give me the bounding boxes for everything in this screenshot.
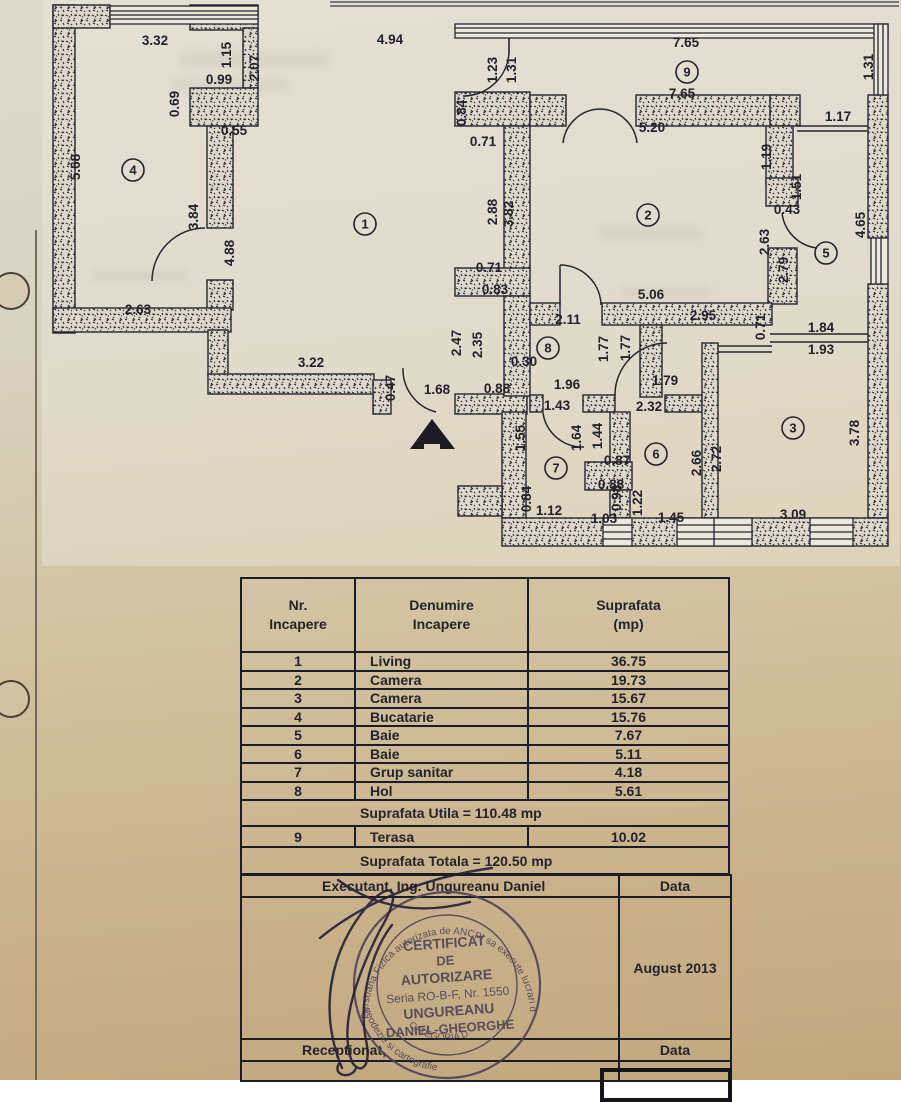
- dim-label: 1.19: [759, 144, 774, 170]
- room-circle: [676, 61, 698, 83]
- room-number: 5: [822, 246, 829, 261]
- room-number: 4: [129, 163, 137, 178]
- entrance-arrow: [410, 419, 455, 449]
- dim-label: 2.47: [449, 330, 464, 356]
- table-cell: 5.61: [528, 782, 729, 801]
- table-cell: Living: [355, 652, 528, 671]
- dim-label: 0.83: [482, 282, 509, 297]
- floor-plan: 3.324.941.231.317.651.317.651.152.070.99…: [0, 0, 901, 570]
- dim-label: 2.32: [636, 399, 662, 414]
- bleed-smudge: [598, 226, 703, 239]
- table-cell: Baie: [355, 726, 528, 745]
- table-cell: 7.67: [528, 726, 729, 745]
- table-cell: Baie: [355, 745, 528, 764]
- room-circle: [637, 204, 659, 226]
- suprafata-totala: Suprafata Totala = 120.50 mp: [241, 847, 729, 874]
- dim-label: 1.77: [596, 336, 611, 362]
- table-cell: Camera: [355, 689, 528, 708]
- table-cell: 4.18: [528, 763, 729, 782]
- dim-label: 1.45: [658, 510, 685, 525]
- dim-label: 0.43: [774, 202, 801, 217]
- table-cell: 1: [241, 652, 355, 671]
- table-cell: 15.67: [528, 689, 729, 708]
- dim-label: 2.63: [757, 228, 772, 255]
- table-row: 4Bucatarie15.76: [241, 708, 729, 727]
- room-number: 6: [652, 447, 659, 462]
- stamp-cell: [241, 897, 619, 1039]
- dim-label: 2.11: [555, 312, 581, 327]
- terasa-name: Terasa: [355, 826, 528, 847]
- dim-label: 1.22: [630, 490, 645, 516]
- dim-label: 2.79: [776, 257, 791, 283]
- dim-label: 1.93: [808, 342, 835, 357]
- dim-label: 3.82: [501, 201, 516, 227]
- table-cell: 6: [241, 745, 355, 764]
- suprafata-utila: Suprafata Utila = 110.48 mp: [241, 800, 729, 826]
- dim-label: 0.87: [604, 453, 630, 468]
- dim-label: 0.84: [454, 99, 469, 126]
- dim-label: 1.55: [513, 424, 528, 451]
- room-circle: [122, 159, 144, 181]
- door-arcs: [152, 53, 817, 447]
- dim-label: 0.71: [753, 313, 768, 340]
- dim-label: 1.03: [591, 511, 618, 526]
- dim-label: 4.94: [377, 32, 404, 47]
- page-edge-line: [35, 230, 37, 1080]
- table-cell: Bucatarie: [355, 708, 528, 727]
- bleed-smudge: [92, 268, 187, 282]
- dim-label: 0.88: [484, 381, 511, 396]
- dim-label: 1.64: [569, 424, 584, 451]
- table-header-row: Nr.Incapere DenumireIncapere Suprafata(m…: [241, 578, 729, 652]
- dim-label: 1.96: [554, 377, 581, 392]
- table-row: 8Hol5.61: [241, 782, 729, 801]
- dim-label: 4.65: [853, 211, 868, 238]
- room-circle: [545, 457, 567, 479]
- signature-table: Executant, Ing. Ungureanu Daniel Data Au…: [240, 874, 732, 1082]
- dim-label: 3.78: [847, 419, 862, 446]
- room-circle: [782, 417, 804, 439]
- room-number: 2: [644, 208, 651, 223]
- table-cell: 5: [241, 726, 355, 745]
- dim-label: 4.88: [222, 239, 237, 266]
- dim-label: 1.43: [544, 398, 571, 413]
- receptionat-label: Receptionat,: [241, 1039, 619, 1061]
- table-cell: 7: [241, 763, 355, 782]
- table-cell: 5.11: [528, 745, 729, 764]
- table-cell: 36.75: [528, 652, 729, 671]
- scanned-cadastral-document: 3.324.941.231.317.651.317.651.152.070.99…: [0, 0, 901, 1080]
- table-row: 7Grup sanitar4.18: [241, 763, 729, 782]
- dim-label: 1.31: [861, 53, 876, 80]
- binding-hole: [0, 680, 30, 718]
- table-cell: 19.73: [528, 671, 729, 690]
- table-cell: 15.76: [528, 708, 729, 727]
- dim-label: 0.71: [476, 260, 503, 275]
- dim-label: 0.30: [511, 354, 537, 369]
- dim-label: 5.20: [639, 120, 665, 135]
- table-cell: Grup sanitar: [355, 763, 528, 782]
- room-circle: [537, 337, 559, 359]
- data-label: Data: [619, 875, 731, 897]
- table-row: 2Camera19.73: [241, 671, 729, 690]
- dim-label: 3.22: [298, 355, 324, 370]
- room-number: 8: [544, 341, 551, 356]
- suprafata-totala-row: Suprafata Totala = 120.50 mp: [241, 847, 729, 874]
- binding-hole: [0, 272, 30, 310]
- header-nr: Nr.Incapere: [241, 578, 355, 652]
- dim-label: 1.77: [618, 335, 633, 361]
- header-denumire: DenumireIncapere: [355, 578, 528, 652]
- dim-label: 1.84: [808, 320, 835, 335]
- terasa-area: 10.02: [528, 826, 729, 847]
- table-row: 5Baie7.67: [241, 726, 729, 745]
- dim-label: 1.17: [825, 109, 851, 124]
- table-cell: 8: [241, 782, 355, 801]
- table-cell: 4: [241, 708, 355, 727]
- table-cell: 2: [241, 671, 355, 690]
- room-circle: [354, 213, 376, 235]
- data-label: Data: [619, 1039, 731, 1061]
- dim-label: 0.98: [609, 484, 624, 511]
- bleed-smudge: [620, 286, 710, 298]
- room-circle: [645, 443, 667, 465]
- dim-label: 1.51: [789, 173, 804, 200]
- header-suprafata: Suprafata(mp): [528, 578, 729, 652]
- table-row: 1Living36.75: [241, 652, 729, 671]
- room-circle: [815, 242, 837, 264]
- dim-label: 1.68: [424, 382, 451, 397]
- room-number-labels: 123456789: [122, 61, 837, 479]
- dim-label: 0.55: [221, 123, 248, 138]
- table-row: 6Baie5.11: [241, 745, 729, 764]
- executant-label: Executant, Ing. Ungureanu Daniel: [241, 875, 619, 897]
- dim-label: 2.66: [689, 449, 704, 476]
- table-cell: Camera: [355, 671, 528, 690]
- dim-label: 7.65: [673, 35, 700, 50]
- dim-label: 1.44: [590, 422, 605, 449]
- dim-label: 0.84: [519, 485, 534, 512]
- stamp-box-outline: [600, 1068, 732, 1102]
- room-number: 1: [361, 217, 368, 232]
- dim-label: 3.32: [142, 33, 168, 48]
- dim-label: 0.69: [167, 91, 182, 117]
- bleed-smudge: [180, 50, 330, 68]
- suprafata-utila-row: Suprafata Utila = 110.48 mp: [241, 800, 729, 826]
- dim-label: 2.72: [709, 446, 724, 472]
- dim-label: 1.12: [536, 503, 562, 518]
- dim-label: 1.79: [652, 373, 678, 388]
- room-number: 9: [683, 65, 690, 80]
- dim-label: 2.95: [690, 308, 717, 323]
- terasa-row: 9 Terasa 10.02: [241, 826, 729, 847]
- area-table: Nr.Incapere DenumireIncapere Suprafata(m…: [240, 577, 730, 875]
- table-row: 3Camera15.67: [241, 689, 729, 708]
- thin-walls: [509, 25, 868, 352]
- terasa-nr: 9: [241, 826, 355, 847]
- room-number: 3: [789, 421, 796, 436]
- dim-label: 0.47: [383, 375, 398, 401]
- table-cell: Hol: [355, 782, 528, 801]
- dim-label: 3.84: [186, 203, 201, 230]
- room-number: 7: [552, 461, 559, 476]
- dim-label: 2.35: [470, 331, 485, 358]
- dim-label: 2.63: [125, 302, 152, 317]
- dim-label: 0.71: [470, 134, 497, 149]
- dim-label: 7.65: [669, 86, 696, 101]
- date-value: August 2013: [619, 897, 731, 1039]
- bleed-smudge: [170, 78, 290, 92]
- dimension-labels: 3.324.941.231.317.651.317.651.152.070.99…: [68, 32, 876, 526]
- dim-label: 2.88: [485, 198, 500, 225]
- table-cell: 3: [241, 689, 355, 708]
- dim-label: 1.31: [504, 56, 519, 83]
- dim-label: 0.88: [598, 477, 625, 492]
- dim-label: 5.68: [68, 153, 83, 180]
- dim-label: 3.09: [780, 507, 806, 522]
- dim-label: 1.23: [485, 56, 500, 83]
